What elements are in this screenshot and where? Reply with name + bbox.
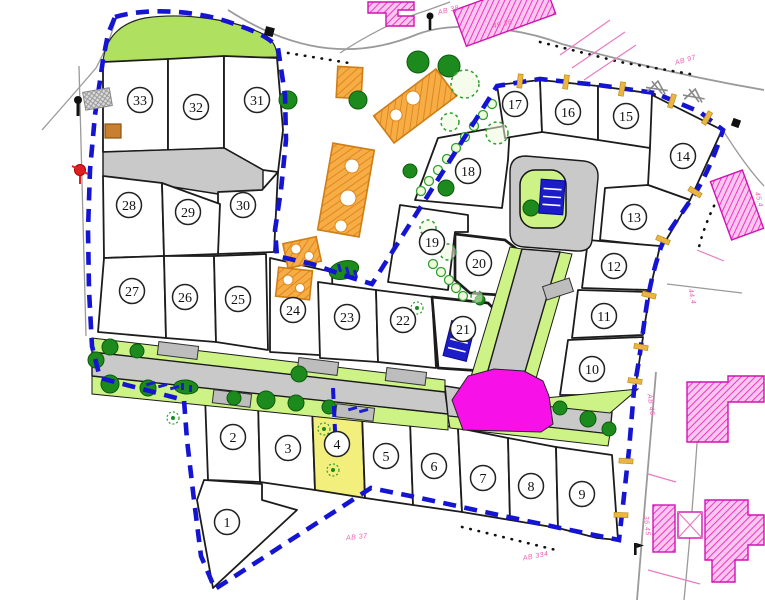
building-annex-brown — [105, 124, 121, 138]
street-lamp-icon-north — [427, 13, 434, 31]
lot-marker-8: 8 — [519, 474, 544, 499]
neighbor-building-east-1 — [710, 170, 763, 240]
lot-marker-33: 33 — [128, 88, 153, 113]
neighbor-building-southeast — [653, 500, 764, 582]
lot-marker-4: 4 — [325, 432, 350, 457]
parking-block-island — [539, 179, 565, 215]
lot-number-label: 23 — [340, 311, 354, 326]
lot-number-label: 14 — [676, 150, 690, 165]
lot-number-label: 16 — [561, 106, 575, 121]
lot-number-label: 31 — [250, 94, 264, 109]
lot-marker-16: 16 — [556, 100, 581, 125]
lot-marker-29: 29 — [176, 200, 201, 225]
lot-number-label: 30 — [236, 199, 250, 214]
lot-marker-15: 15 — [614, 104, 639, 129]
lot-marker-13: 13 — [622, 205, 647, 230]
lot-number-label: 32 — [189, 101, 203, 116]
lot-marker-7: 7 — [471, 466, 496, 491]
lot-number-label: 13 — [627, 211, 641, 226]
fire-hydrant-icon — [72, 165, 88, 185]
lot-marker-11: 11 — [592, 304, 617, 329]
lot-marker-25: 25 — [226, 287, 251, 312]
lot-number-label: 4 — [334, 438, 341, 453]
lot-number-label: 9 — [579, 488, 586, 503]
lot-number-label: 18 — [461, 165, 475, 180]
lot-marker-12: 12 — [602, 254, 627, 279]
neighbor-building-east-2 — [687, 376, 764, 442]
lot-number-label: 29 — [181, 206, 195, 221]
lot-marker-32: 32 — [184, 95, 209, 120]
lot-marker-21: 21 — [451, 317, 476, 342]
building-barn-large-diagonal — [374, 69, 457, 143]
lot-number-label: 28 — [122, 199, 136, 214]
lot-number-label: 25 — [231, 293, 245, 308]
lot-marker-1: 1 — [215, 510, 240, 535]
lot-marker-5: 5 — [374, 444, 399, 469]
lot-marker-10: 10 — [580, 357, 605, 382]
lot-marker-22: 22 — [391, 308, 416, 333]
lot-marker-20: 20 — [467, 251, 492, 276]
lot-number-label: 12 — [607, 260, 621, 275]
lot-number-label: 22 — [396, 314, 410, 329]
lot-number-label: 15 — [619, 110, 633, 125]
lot-number-label: 33 — [133, 94, 147, 109]
lot-number-label: 27 — [125, 285, 139, 300]
lot-marker-3: 3 — [276, 436, 301, 461]
lot-number-label: 6 — [431, 460, 438, 475]
lot-number-label: 26 — [178, 291, 192, 306]
lot-marker-27: 27 — [120, 279, 145, 304]
neighbor-building-north-1 — [368, 2, 414, 26]
lot-number-label: 1 — [224, 516, 231, 531]
lot-number-label: 2 — [230, 431, 237, 446]
parcel-ref-label: AB 334 — [521, 551, 549, 563]
lot-marker-24: 24 — [281, 298, 306, 323]
lot-number-label: 7 — [480, 472, 487, 487]
lot-number-label: 3 — [285, 442, 292, 457]
lot-marker-9: 9 — [570, 482, 595, 507]
lot-marker-19: 19 — [420, 230, 445, 255]
lot-number-label: 5 — [383, 450, 390, 465]
lot-marker-26: 26 — [173, 285, 198, 310]
lot-marker-28: 28 — [117, 193, 142, 218]
lot-marker-18: 18 — [456, 159, 481, 184]
lot-number-label: 20 — [472, 257, 486, 272]
lot-marker-2: 2 — [221, 425, 246, 450]
parcel-ref-label: AB 97 — [673, 54, 697, 67]
lot-number-label: 17 — [508, 98, 522, 113]
lot-number-label: 10 — [585, 363, 599, 378]
lot-number-label: 8 — [528, 480, 535, 495]
lot-marker-23: 23 — [335, 305, 360, 330]
building-barn-long — [318, 143, 375, 237]
site-plan-svg: 1234567891011121314151617181920212223242… — [0, 0, 765, 600]
neighbor-annex-lines — [560, 20, 636, 80]
building-shed-2 — [276, 267, 313, 299]
site-plan-canvas: 1234567891011121314151617181920212223242… — [0, 0, 765, 600]
parcel-ref-label: 44.4 — [686, 288, 696, 305]
lot-polygon-1 — [197, 480, 297, 588]
lot-marker-30: 30 — [231, 193, 256, 218]
lot-number-label: 24 — [286, 304, 300, 319]
lot-marker-17: 17 — [503, 92, 528, 117]
lot-marker-6: 6 — [422, 454, 447, 479]
lot-number-label: 11 — [597, 310, 610, 325]
lot-number-label: 21 — [456, 323, 470, 338]
lot-number-label: 19 — [425, 236, 439, 251]
signal-post-icon — [634, 543, 644, 555]
lot-marker-14: 14 — [671, 144, 696, 169]
paved-plaza — [452, 369, 553, 432]
parcel-ref-label: AB 37 — [345, 533, 369, 542]
lot-marker-31: 31 — [245, 88, 270, 113]
